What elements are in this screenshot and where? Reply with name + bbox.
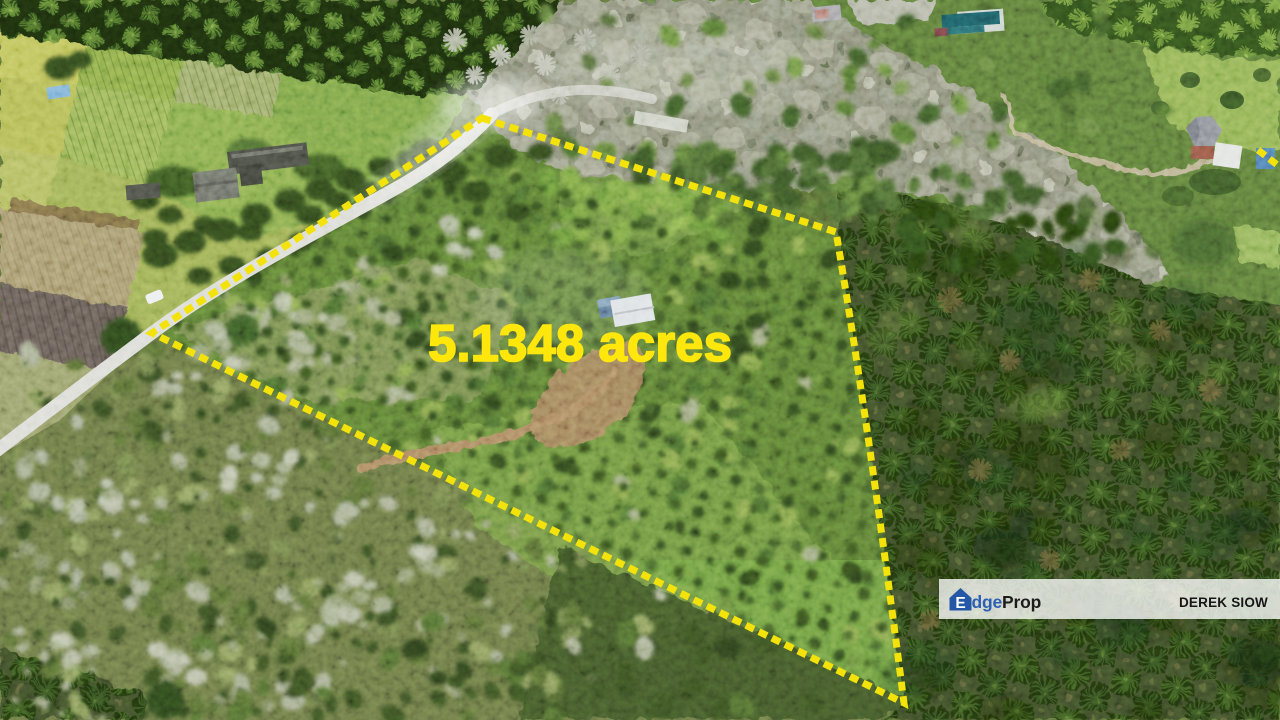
- svg-text:5.1348 acres: 5.1348 acres: [428, 315, 732, 373]
- svg-text:dgeProp: dgeProp: [972, 592, 1042, 612]
- svg-text:DEREK SIOW: DEREK SIOW: [1179, 595, 1268, 610]
- svg-text:E: E: [955, 595, 965, 612]
